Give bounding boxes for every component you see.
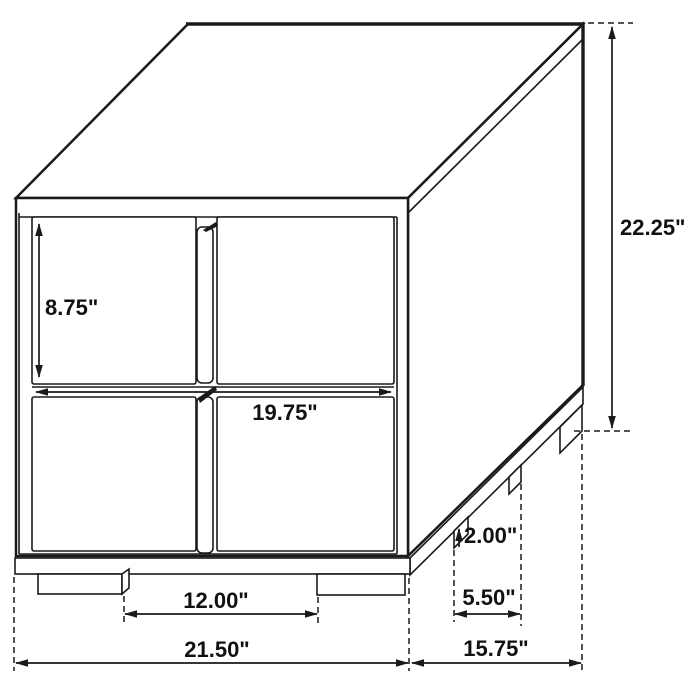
dimension-label-drawer-width: 19.75" [252, 400, 317, 425]
dimension-label-overall-height: 22.25" [620, 215, 685, 240]
front-leg-left [38, 574, 122, 594]
front-leg-left-side-face [122, 569, 129, 594]
nightstand-drawing-canvas: 8.75" 22.25" 19.75" 2.00" 12.00" 5.50" 2… [0, 0, 700, 700]
front-leg-right [317, 574, 405, 595]
drawer-handle-top [197, 227, 213, 383]
dimension-label-drawer-height: 8.75" [45, 295, 98, 320]
drawer-panel-bottom-left [32, 397, 196, 551]
dimension-label-side-leg-gap: 5.50" [462, 585, 515, 610]
base-plinth-front [15, 558, 410, 574]
drawer-panel-top-right [217, 217, 394, 384]
dimension-label-front-leg-gap: 12.00" [183, 588, 248, 613]
dimension-label-overall-width: 21.50" [184, 637, 249, 662]
dimension-label-leg-height: 2.00" [464, 523, 517, 548]
dimension-diagram: 8.75" 22.25" 19.75" 2.00" 12.00" 5.50" 2… [0, 0, 700, 700]
dimension-label-overall-depth: 15.75" [463, 636, 528, 661]
drawer-handle-bottom [197, 397, 213, 553]
